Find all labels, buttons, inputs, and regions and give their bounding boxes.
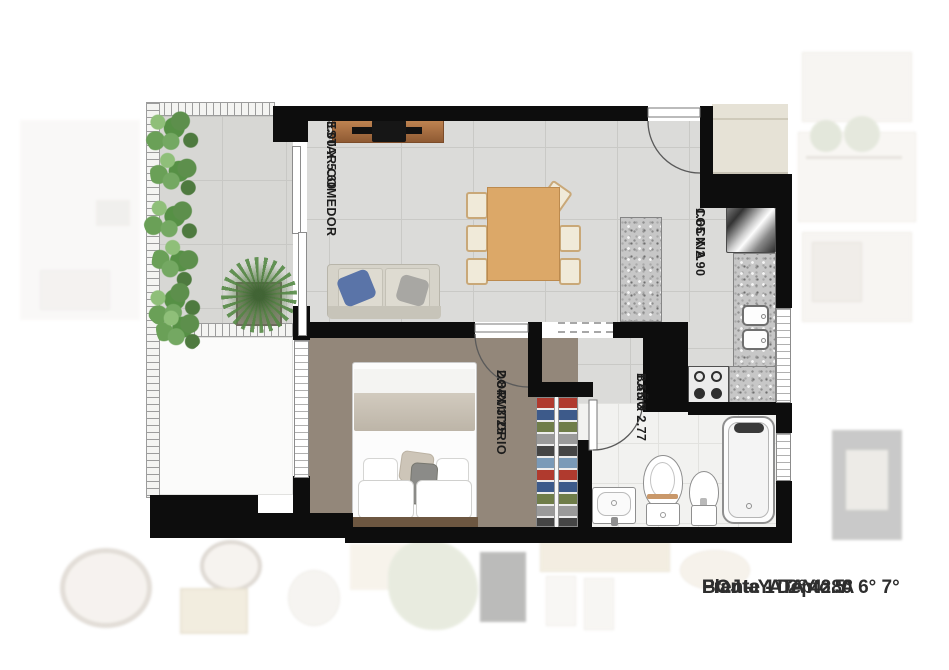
wall-top (273, 106, 648, 121)
dining-chair (559, 258, 581, 285)
dining-table (487, 187, 560, 281)
wall-wardrobe-top (528, 382, 593, 397)
wall-bottom-left (150, 495, 258, 538)
background-facade-render (792, 52, 949, 347)
bed (352, 362, 477, 522)
dining-chair (466, 225, 488, 252)
toilet-tank (646, 503, 680, 526)
wall (700, 106, 713, 180)
wall-bottom (345, 527, 792, 543)
room-dims: 3.00 X 5.60 (323, 121, 338, 189)
wall (528, 322, 542, 384)
room-dims: 2.84X 3.25 (493, 370, 508, 434)
toilet (643, 455, 683, 509)
wall-right-upper (776, 174, 792, 308)
wall (293, 476, 310, 518)
dining-chair (559, 225, 581, 252)
background-interior-right-render (802, 420, 949, 570)
potted-plant (221, 257, 297, 333)
kitchen-counter-bottom (729, 366, 776, 405)
sliding-door-panel (298, 232, 307, 336)
stove (688, 366, 729, 405)
wall-living-bedroom (307, 322, 475, 338)
balcony-lower-area (158, 337, 293, 495)
sliding-door-panel (292, 146, 301, 234)
wall (688, 402, 776, 415)
wall (578, 440, 592, 527)
floorplan-page: ESTAR COMEDOR 3.00 X 5.60 COCINA 1.65 X … (0, 0, 949, 670)
wall (700, 174, 778, 208)
background-kitchen-render (480, 542, 810, 662)
wall (776, 403, 792, 433)
background-interior-left-render (0, 80, 148, 420)
bedroom-window (294, 340, 309, 478)
kitchen-window (776, 308, 791, 403)
entry-door-leaf (648, 108, 700, 117)
caption-line-project: BOJ - YATAY 280 (702, 575, 852, 601)
room-dims: 1.65 X 2.90 (692, 208, 707, 276)
bedroom-door-leaf (475, 324, 528, 332)
fridge (726, 207, 776, 253)
kitchen-sink-bowl (742, 329, 769, 350)
entry-landing (712, 104, 788, 174)
bathroom-window (776, 433, 791, 481)
washbasin (592, 487, 636, 524)
sofa (327, 264, 440, 318)
wardrobe-sliding-track (554, 397, 559, 527)
dining-chair (466, 258, 488, 285)
background-terrace-render (20, 540, 480, 665)
kitchen-counter-left (620, 217, 662, 322)
bidet-tank (691, 505, 717, 526)
wall (643, 330, 688, 412)
room-dims: 1.55 X 2.77 (633, 373, 648, 441)
dining-chair (466, 192, 488, 219)
tv-screen (372, 120, 406, 142)
bathtub (722, 416, 775, 524)
kitchen-sink-bowl (742, 305, 769, 326)
